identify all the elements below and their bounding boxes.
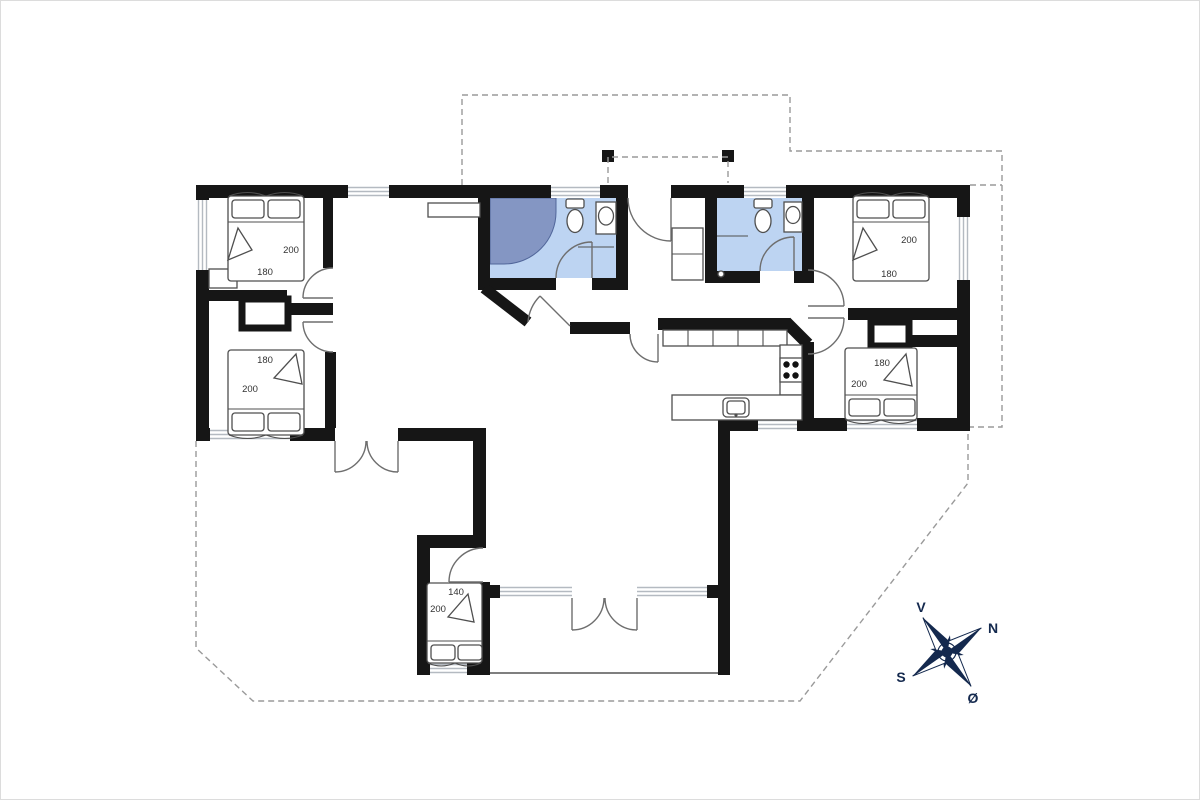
- bed-4-width: 180: [874, 358, 890, 369]
- bed-1-width: 180: [257, 267, 273, 278]
- pillow-icon: [893, 200, 925, 218]
- compass-center: [942, 647, 953, 658]
- pillow-icon: [458, 645, 482, 660]
- bedroom-2-door: [303, 322, 333, 352]
- compass-label-north: N: [988, 620, 998, 636]
- compass-label-west: V: [916, 599, 926, 615]
- floor-plan: 200 180 180 200 200 180 180 200 140 200: [0, 0, 1200, 800]
- closet-left-wing: [242, 299, 288, 328]
- closet-right-wing: [871, 322, 909, 346]
- porch-post: [722, 150, 734, 162]
- bed-3-width: 180: [881, 269, 897, 280]
- bed-3-length: 200: [901, 235, 917, 246]
- bed-1-length: 200: [283, 245, 299, 256]
- pillow-icon: [232, 200, 264, 218]
- hall-door: [630, 334, 658, 362]
- sink-icon: [786, 207, 800, 224]
- compass-label-south: S: [896, 669, 905, 685]
- toilet-bowl-icon: [755, 210, 771, 233]
- left-terrace-doors: [335, 441, 398, 472]
- bed-5-width: 140: [448, 587, 464, 598]
- stove-icon: [780, 358, 802, 382]
- toilet-icon: [566, 199, 584, 208]
- compass-rose: V N S Ø: [889, 594, 1006, 711]
- sideboard: [428, 203, 480, 217]
- floor-plan-page: 200 180 180 200 200 180 180 200 140 200: [0, 0, 1200, 800]
- entrance-door: [628, 198, 671, 241]
- bed-5-length: 200: [430, 604, 446, 615]
- floor-drain-icon: [718, 271, 724, 277]
- diagonal-hall-door: [528, 296, 570, 326]
- pillow-icon: [268, 413, 300, 431]
- kitchen-counter: [663, 330, 787, 346]
- kitchen: [663, 330, 802, 420]
- bed-2-length: 200: [242, 384, 258, 395]
- terrace-outline: [196, 431, 968, 701]
- pillow-icon: [884, 399, 915, 416]
- faucet-icon: [734, 413, 737, 416]
- pillow-icon: [268, 200, 300, 218]
- bed-3: [853, 193, 929, 282]
- pillow-icon: [849, 399, 880, 416]
- pillow-icon: [431, 645, 455, 660]
- bed-2-width: 180: [257, 355, 273, 366]
- bedroom-1-door: [303, 268, 333, 298]
- terrace-french-doors: [572, 598, 637, 630]
- toilet-icon: [754, 199, 772, 208]
- entrance-canopy-outline: [608, 157, 728, 183]
- bed-4-length: 200: [851, 379, 867, 390]
- compass-label-east: Ø: [968, 690, 979, 706]
- sink-icon: [599, 207, 614, 225]
- pillow-icon: [857, 200, 889, 218]
- toilet-bowl-icon: [567, 210, 583, 233]
- pillow-icon: [232, 413, 264, 431]
